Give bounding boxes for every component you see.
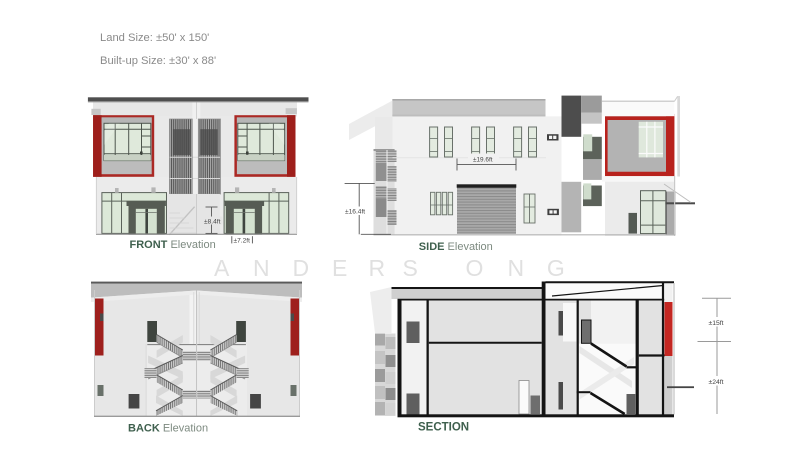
svg-text:N: N	[253, 255, 270, 281]
svg-text:E: E	[332, 255, 347, 281]
svg-text:BACK Elevation: BACK Elevation	[128, 423, 208, 435]
svg-text:±19.6ft: ±19.6ft	[473, 157, 493, 164]
svg-text:Built-up Size: ±30' x 88': Built-up Size: ±30' x 88'	[100, 55, 216, 67]
svg-text:R: R	[369, 255, 386, 281]
svg-text:SECTION: SECTION	[418, 422, 469, 434]
svg-text:±24ft: ±24ft	[709, 379, 724, 386]
svg-text:±15ft: ±15ft	[709, 320, 724, 327]
svg-text:D: D	[293, 255, 310, 281]
svg-text:A: A	[214, 255, 230, 281]
svg-text:O: O	[466, 255, 484, 281]
svg-text:FRONT Elevation: FRONT Elevation	[130, 239, 216, 251]
svg-text:SIDE Elevation: SIDE Elevation	[419, 241, 493, 253]
svg-text:±7.2ft: ±7.2ft	[234, 237, 251, 244]
svg-text:±16.4ft: ±16.4ft	[345, 209, 365, 216]
svg-text:N: N	[508, 255, 525, 281]
svg-text:Land Size: ±50' x 150': Land Size: ±50' x 150'	[100, 32, 209, 44]
svg-text:G: G	[547, 255, 565, 281]
svg-text:S: S	[403, 255, 418, 281]
svg-text:±8.4ft: ±8.4ft	[204, 219, 221, 226]
